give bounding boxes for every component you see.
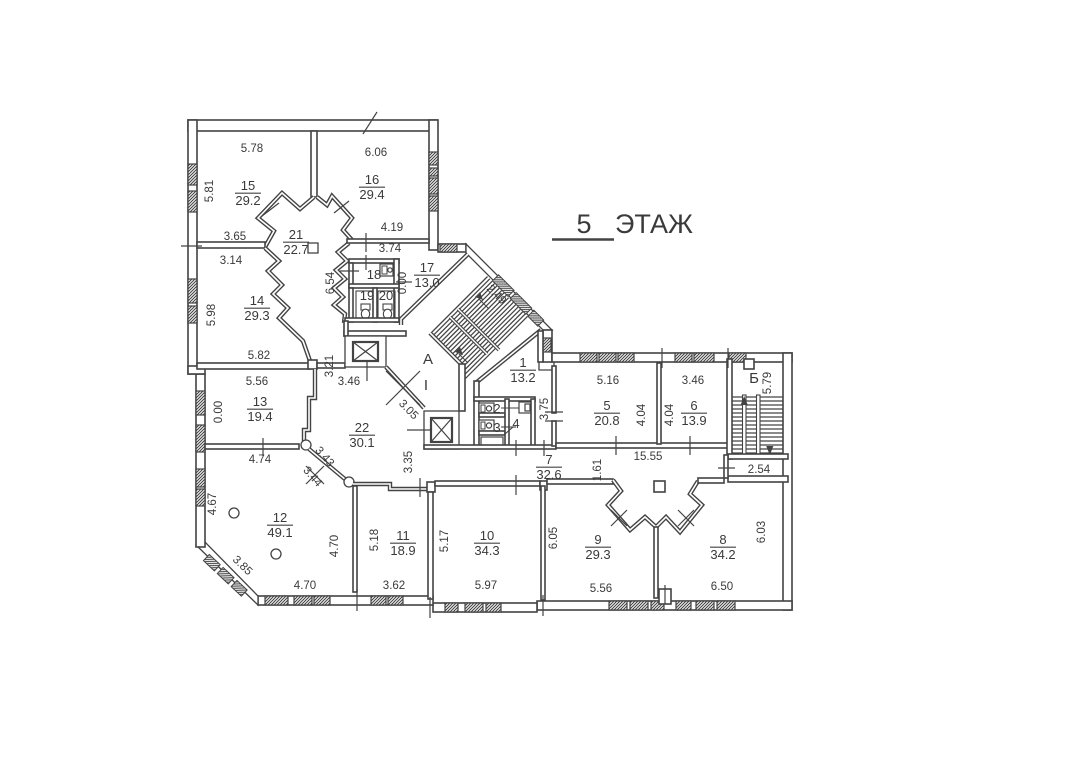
svg-text:6.05: 6.05 <box>548 527 560 549</box>
svg-text:3.14: 3.14 <box>220 255 243 267</box>
svg-text:13.2: 13.2 <box>510 370 535 385</box>
svg-text:5.98: 5.98 <box>206 304 218 326</box>
svg-text:15.55: 15.55 <box>634 451 663 463</box>
svg-text:5: 5 <box>576 209 591 239</box>
svg-text:Б: Б <box>749 370 759 387</box>
svg-text:15: 15 <box>241 178 255 193</box>
svg-text:5: 5 <box>603 398 610 413</box>
svg-text:9: 9 <box>594 532 601 547</box>
svg-text:А: А <box>423 351 433 368</box>
svg-text:8: 8 <box>719 532 726 547</box>
svg-text:18: 18 <box>367 267 381 282</box>
svg-text:34.3: 34.3 <box>474 543 499 558</box>
svg-text:5.82: 5.82 <box>248 350 270 362</box>
svg-text:30.1: 30.1 <box>349 435 374 450</box>
svg-text:1: 1 <box>519 355 526 370</box>
svg-text:6.54: 6.54 <box>325 271 337 294</box>
svg-text:5.16: 5.16 <box>597 375 619 387</box>
svg-text:16: 16 <box>365 172 379 187</box>
svg-text:20.8: 20.8 <box>594 413 619 428</box>
svg-text:7: 7 <box>545 452 552 467</box>
svg-text:6.50: 6.50 <box>711 581 733 593</box>
svg-text:4.04: 4.04 <box>636 403 648 426</box>
svg-text:22.7: 22.7 <box>283 242 308 257</box>
svg-text:1.61: 1.61 <box>592 459 604 481</box>
svg-text:17: 17 <box>420 260 434 275</box>
svg-text:4.70: 4.70 <box>329 535 341 557</box>
svg-text:19.4: 19.4 <box>247 409 272 424</box>
svg-text:0.00: 0.00 <box>213 401 225 423</box>
svg-text:3.75: 3.75 <box>539 398 551 420</box>
svg-text:I: I <box>424 377 428 394</box>
svg-text:4.19: 4.19 <box>381 222 403 234</box>
svg-text:14: 14 <box>250 293 264 308</box>
svg-text:3.21: 3.21 <box>324 355 336 377</box>
svg-text:3.46: 3.46 <box>338 376 360 388</box>
svg-text:21: 21 <box>289 227 303 242</box>
svg-text:3.74: 3.74 <box>379 243 402 255</box>
svg-text:29.3: 29.3 <box>244 308 269 323</box>
svg-text:ЭТАЖ: ЭТАЖ <box>615 209 693 239</box>
svg-text:0.00: 0.00 <box>397 272 409 294</box>
svg-text:18.9: 18.9 <box>390 543 415 558</box>
svg-text:6: 6 <box>690 398 697 413</box>
svg-text:2: 2 <box>493 401 500 416</box>
svg-text:3: 3 <box>493 420 500 435</box>
svg-text:32.6: 32.6 <box>536 467 561 482</box>
svg-text:19: 19 <box>360 288 374 303</box>
svg-text:3.46: 3.46 <box>682 375 704 387</box>
svg-text:3.62: 3.62 <box>383 580 405 592</box>
svg-text:5.17: 5.17 <box>439 530 451 552</box>
svg-text:5.56: 5.56 <box>246 376 268 388</box>
svg-text:13.9: 13.9 <box>681 413 706 428</box>
svg-text:5.97: 5.97 <box>475 580 497 592</box>
svg-text:4.04: 4.04 <box>664 403 676 426</box>
svg-text:2.54: 2.54 <box>748 464 771 476</box>
svg-text:29.4: 29.4 <box>359 187 384 202</box>
svg-text:5.56: 5.56 <box>590 583 612 595</box>
svg-text:12: 12 <box>273 510 287 525</box>
svg-text:22: 22 <box>355 420 369 435</box>
svg-text:4.67: 4.67 <box>207 493 219 515</box>
svg-text:4.70: 4.70 <box>294 580 316 592</box>
svg-text:3.35: 3.35 <box>403 451 415 473</box>
svg-text:6.03: 6.03 <box>756 521 768 543</box>
svg-text:5.78: 5.78 <box>241 143 263 155</box>
svg-text:10: 10 <box>480 528 494 543</box>
svg-text:5.81: 5.81 <box>204 180 216 202</box>
svg-text:49.1: 49.1 <box>267 525 292 540</box>
svg-text:4.74: 4.74 <box>249 454 272 466</box>
svg-text:4: 4 <box>512 416 519 431</box>
svg-text:13: 13 <box>253 394 267 409</box>
svg-text:20: 20 <box>379 288 393 303</box>
svg-text:11: 11 <box>396 528 410 543</box>
svg-text:29.3: 29.3 <box>585 547 610 562</box>
svg-text:5.18: 5.18 <box>369 529 381 551</box>
svg-text:29.2: 29.2 <box>235 193 260 208</box>
svg-text:34.2: 34.2 <box>710 547 735 562</box>
svg-text:13.0: 13.0 <box>414 275 439 290</box>
svg-text:5.79: 5.79 <box>762 372 774 394</box>
svg-text:3.65: 3.65 <box>224 231 246 243</box>
svg-text:6.06: 6.06 <box>365 147 387 159</box>
